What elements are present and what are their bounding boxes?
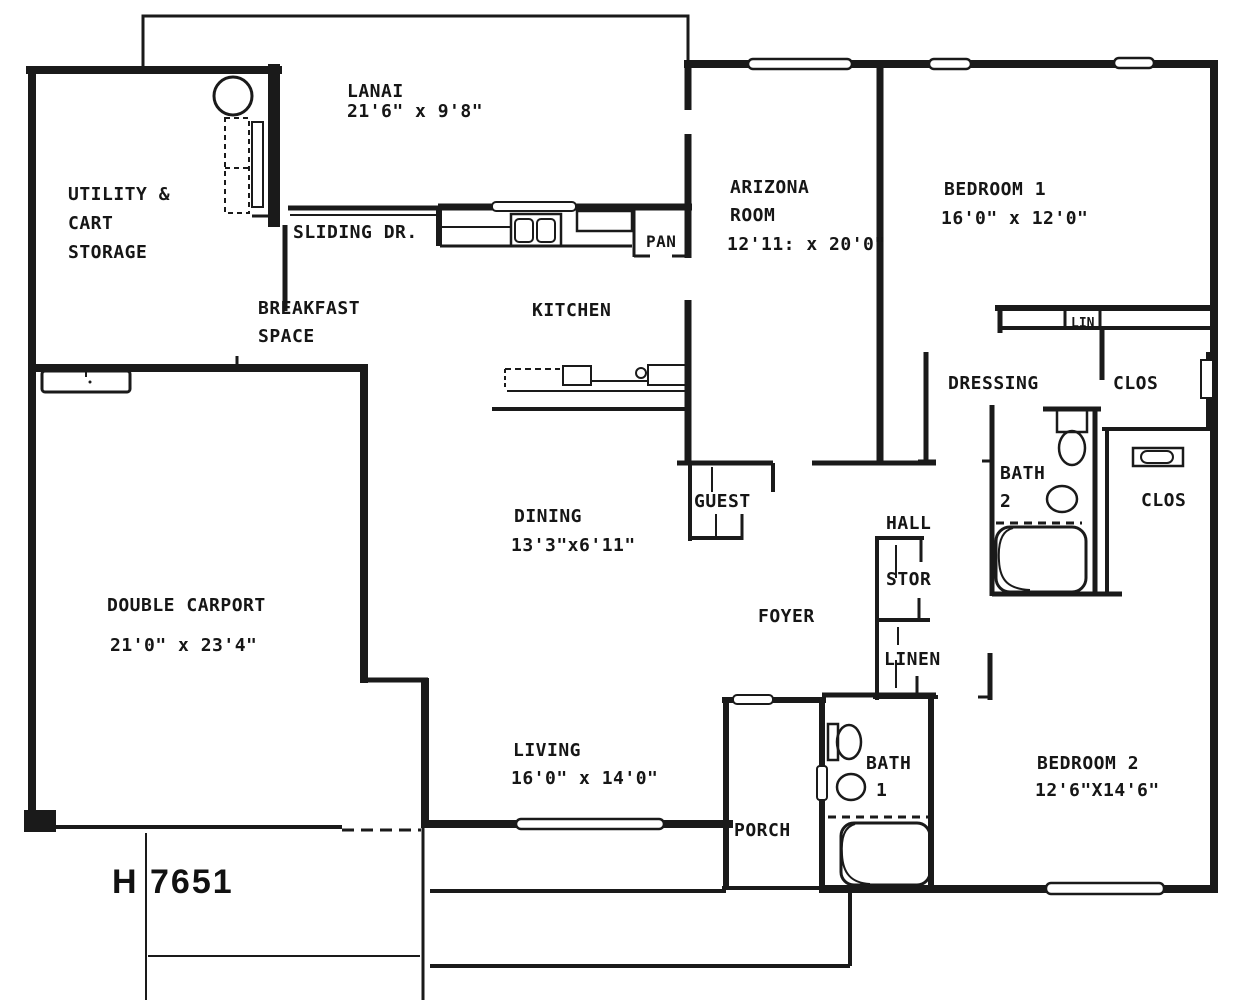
- bath2-sink: [1047, 486, 1077, 512]
- label-bath1-2: 1: [876, 780, 887, 801]
- label-hall: HALL: [886, 513, 931, 534]
- label-lanai-dims: 21'6" x 9'8": [347, 101, 483, 122]
- utility-shelf: [252, 122, 263, 207]
- arizona-window: [748, 59, 852, 69]
- kitchen-counters: [440, 209, 632, 246]
- bath1-porch-window: [817, 766, 827, 800]
- bath2-toilet-bowl: [1059, 431, 1085, 465]
- label-carport: DOUBLE CARPORT: [107, 595, 266, 616]
- label-dining: DINING: [514, 506, 582, 527]
- floor-plan: LANAI 21'6" x 9'8" UTILITY & CART STORAG…: [0, 0, 1241, 1001]
- bath1-bathtub: [841, 823, 930, 885]
- label-closet-bedroom2: CLOS: [1141, 490, 1186, 511]
- closet-door: [1201, 360, 1213, 398]
- kitchen-sink-bowl-left: [515, 219, 533, 242]
- label-lanai: LANAI: [347, 81, 404, 102]
- utility-fixtures: [214, 77, 263, 213]
- bath2-toilet-tank: [1057, 410, 1087, 432]
- label-kitchen: KITCHEN: [532, 300, 611, 321]
- label-dining-dims: 13'3"x6'11": [511, 535, 636, 556]
- front-door: [733, 695, 773, 704]
- bedroom1-window-left: [929, 59, 971, 69]
- washer-dryer: [225, 118, 249, 213]
- label-arizona-1: ARIZONA: [730, 177, 809, 198]
- label-foyer: FOYER: [758, 606, 815, 627]
- label-bedroom2-dims: 12'6"X14'6": [1035, 780, 1160, 801]
- label-pantry: PAN: [646, 232, 676, 251]
- label-guest-closet: GUEST: [694, 491, 751, 512]
- plan-number: H 7651: [112, 863, 234, 901]
- label-bath2-2: 2: [1000, 491, 1011, 512]
- label-storage-closet: STOR: [886, 569, 931, 590]
- kitchen-sink-bowl-right: [537, 219, 555, 242]
- label-bath1-1: BATH: [866, 753, 911, 774]
- front-steps: [146, 833, 850, 1000]
- label-dressing: DRESSING: [948, 373, 1039, 394]
- label-arizona-2: ROOM: [730, 205, 775, 226]
- floor-plan-page: LANAI 21'6" x 9'8" UTILITY & CART STORAG…: [0, 0, 1241, 1001]
- label-bath2-1: BATH: [1000, 463, 1045, 484]
- label-sliding-door: SLIDING DR.: [293, 222, 418, 243]
- label-porch: PORCH: [734, 820, 791, 841]
- label-bedroom1-dims: 16'0" x 12'0": [941, 208, 1088, 229]
- label-linen-closet: LINEN: [884, 649, 941, 670]
- label-bedroom1: BEDROOM 1: [944, 179, 1046, 200]
- counter-sink-knob: [636, 368, 646, 378]
- label-living-dims: 16'0" x 14'0": [511, 768, 658, 789]
- interior-walls: [237, 64, 1210, 700]
- water-heater: [214, 77, 252, 115]
- label-arizona-dims: 12'11: x 20'0": [727, 234, 886, 255]
- refrigerator: [577, 211, 632, 231]
- label-utility-1: UTILITY &: [68, 184, 170, 205]
- label-breakfast-2: SPACE: [258, 326, 315, 347]
- label-breakfast-1: BREAKFAST: [258, 298, 360, 319]
- label-bedroom2: BEDROOM 2: [1037, 753, 1139, 774]
- dressing-vanity-sink: [1141, 451, 1173, 463]
- range-fixture: [563, 366, 591, 385]
- counter-cabinet: [648, 365, 688, 385]
- exterior-walls: [24, 60, 1218, 1000]
- kitchen-range-counter: [492, 365, 688, 409]
- lanai-outline: [143, 16, 688, 70]
- bath1-toilet-bowl: [837, 725, 861, 759]
- bath2-bathtub: [996, 527, 1086, 592]
- label-utility-2: CART: [68, 213, 113, 234]
- living-window: [516, 819, 664, 829]
- carport-cabinet: [42, 371, 130, 392]
- label-carport-dims: 21'0" x 23'4": [110, 635, 257, 656]
- label-closet-bedroom1: CLOS: [1113, 373, 1158, 394]
- kitchen-window: [492, 202, 576, 211]
- label-utility-3: STORAGE: [68, 242, 147, 263]
- bedroom1-window-right: [1114, 58, 1154, 68]
- label-linen-cabinet: LIN: [1071, 316, 1095, 331]
- label-living: LIVING: [513, 740, 581, 761]
- bedroom2-window: [1046, 883, 1164, 894]
- bath1-sink: [837, 774, 865, 800]
- bath1-fixtures: [828, 724, 930, 885]
